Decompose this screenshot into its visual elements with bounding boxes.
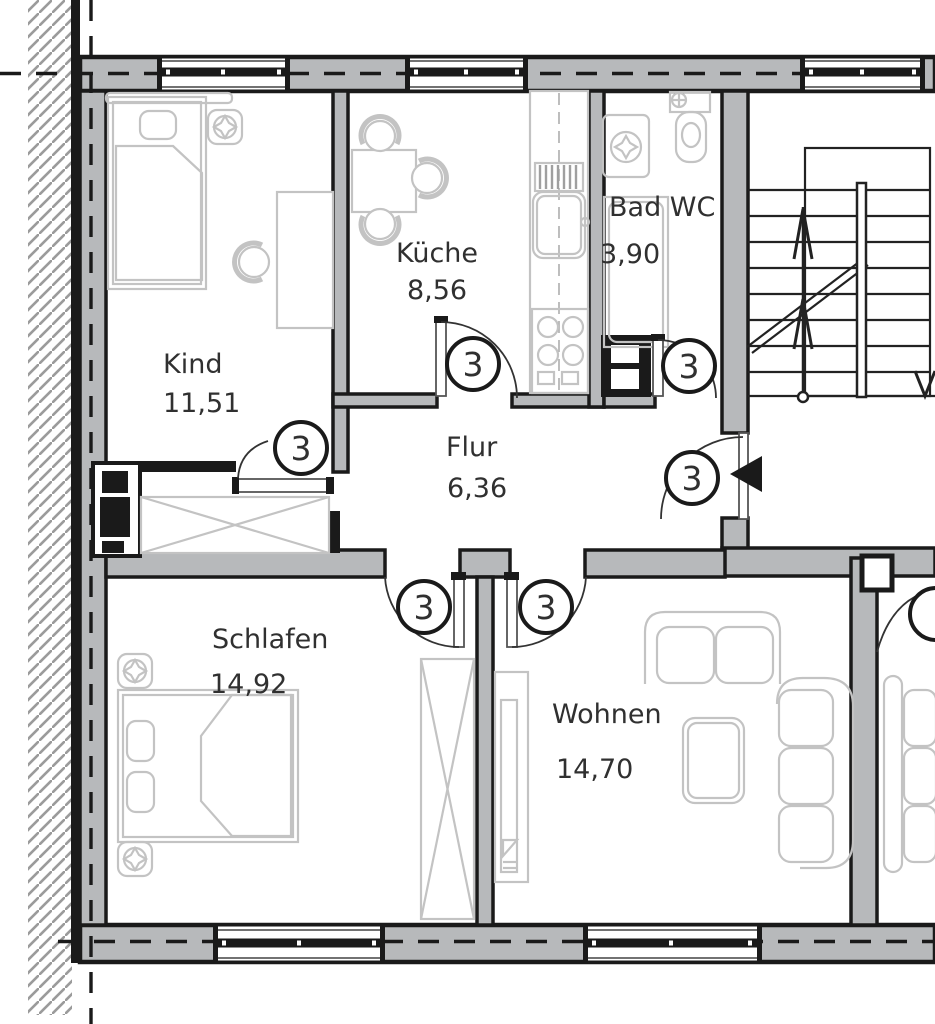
room-kind-furniture bbox=[106, 93, 333, 328]
room-area-bad: 3,90 bbox=[600, 239, 660, 270]
chair-icon bbox=[361, 117, 399, 151]
wall-pier-flur bbox=[329, 511, 340, 553]
room-area-schlafen: 14,92 bbox=[210, 669, 287, 700]
wall-flur-south-right bbox=[585, 550, 725, 577]
door-label: 3 bbox=[414, 588, 435, 627]
room-area-kind: 11,51 bbox=[163, 388, 240, 419]
room-name-wohnen: Wohnen bbox=[552, 699, 662, 730]
wall-landing-south bbox=[722, 548, 935, 576]
window bbox=[405, 57, 528, 91]
room-name-flur: Flur bbox=[446, 432, 498, 463]
kitchen-table-icon bbox=[352, 150, 416, 212]
door-circle bbox=[910, 588, 935, 640]
chair-icon bbox=[235, 243, 269, 281]
kitchen-counter bbox=[530, 91, 589, 393]
door-bad: 3 bbox=[651, 334, 716, 398]
floor-plan-svg: 3 3 3 3 bbox=[0, 0, 935, 1024]
window bbox=[213, 925, 385, 962]
sofa-two-seat-icon bbox=[645, 612, 780, 684]
room-name-schlafen: Schlafen bbox=[212, 624, 328, 655]
room-schlafen-furniture bbox=[118, 654, 474, 919]
lamp-icon bbox=[208, 110, 242, 144]
wall-schlafen-wohnen bbox=[477, 577, 493, 925]
floor-plan-page: 3 3 3 3 bbox=[0, 0, 935, 1024]
window bbox=[157, 57, 290, 91]
door-label: 3 bbox=[682, 459, 703, 498]
wall-wohnen-neighbor bbox=[851, 558, 877, 925]
room-name-kind: Kind bbox=[163, 349, 222, 380]
door-schlafen: 3 bbox=[385, 572, 466, 647]
wardrobe-icon bbox=[421, 659, 474, 919]
room-area-kueche: 8,56 bbox=[407, 275, 467, 306]
sofa-three-seat-icon bbox=[884, 676, 935, 872]
room-area-wohnen: 14,70 bbox=[556, 754, 633, 785]
lamp-icon bbox=[118, 654, 152, 688]
lamp-icon bbox=[118, 842, 152, 876]
wall-flur-south-center bbox=[460, 550, 510, 577]
door-entrance: 3 bbox=[661, 433, 762, 519]
door-kueche: 3 bbox=[434, 316, 517, 398]
washing-machine-icon bbox=[603, 115, 649, 177]
single-bed-icon bbox=[106, 93, 232, 289]
door-label: 3 bbox=[536, 588, 557, 627]
bottom-facade-wall bbox=[80, 925, 935, 962]
room-wohnen-furniture bbox=[495, 612, 853, 882]
door-wohnen: 3 bbox=[504, 572, 586, 647]
room-area-flur: 6,36 bbox=[447, 473, 507, 504]
wall-apartment-stairwell bbox=[722, 91, 748, 433]
door-kind: 3 bbox=[232, 422, 334, 494]
chair-icon bbox=[361, 209, 399, 243]
room-name-bad: Bad WC bbox=[609, 192, 715, 223]
sofa-three-seat-icon bbox=[777, 678, 853, 868]
bath-shaft bbox=[601, 335, 651, 397]
wall-kueche-south-left bbox=[333, 394, 437, 407]
door-label: 3 bbox=[679, 347, 700, 386]
double-bed-icon bbox=[118, 690, 298, 842]
desk-icon bbox=[277, 192, 333, 328]
handrail bbox=[857, 183, 866, 397]
chimney-shaft bbox=[93, 463, 140, 556]
neighbor-apartment-partial bbox=[877, 588, 935, 872]
door-label: 3 bbox=[291, 429, 312, 468]
chair-icon bbox=[412, 159, 446, 197]
wall-kind-kueche bbox=[333, 91, 348, 472]
shelf-icon bbox=[495, 672, 528, 882]
coffee-table-icon bbox=[683, 718, 744, 803]
door-label: 3 bbox=[463, 345, 484, 384]
window bbox=[583, 925, 762, 962]
adjacent-building-hatch bbox=[28, 0, 80, 1015]
room-name-kueche: Küche bbox=[396, 238, 478, 269]
shaft-box bbox=[862, 556, 892, 590]
window bbox=[800, 57, 925, 91]
toilet-icon bbox=[670, 92, 710, 162]
staircase bbox=[747, 148, 935, 402]
flur-wardrobe-icon bbox=[141, 497, 329, 553]
down-arrow-icon bbox=[915, 371, 935, 396]
